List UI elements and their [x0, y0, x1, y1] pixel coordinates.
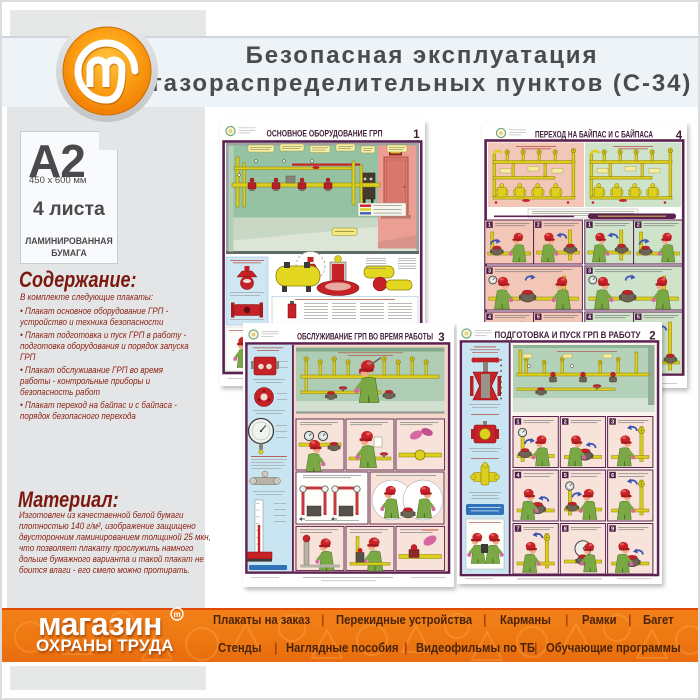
- svg-text:5: 5: [537, 315, 540, 321]
- svg-text:5: 5: [564, 473, 567, 479]
- svg-text:1: 1: [588, 223, 591, 229]
- svg-text:ОБСЛУЖИВАНИЕ ГРП ВО ВРЕМЯ РАБО: ОБСЛУЖИВАНИЕ ГРП ВО ВРЕМЯ РАБОТЫ: [297, 332, 433, 343]
- svg-text:9: 9: [611, 527, 614, 533]
- svg-text:ПЕРЕХОД НА БАЙПАС И С БАЙПАСА: ПЕРЕХОД НА БАЙПАС И С БАЙПАСА: [535, 129, 653, 141]
- svg-text:3: 3: [611, 420, 614, 426]
- svg-text:1: 1: [516, 420, 519, 426]
- svg-text:ПОДГОТОВКА И ПУСК ГРП В РАБОТУ: ПОДГОТОВКА И ПУСК ГРП В РАБОТУ: [495, 330, 641, 341]
- svg-text:2: 2: [637, 223, 640, 229]
- svg-text:8: 8: [564, 527, 567, 533]
- svg-text:2: 2: [564, 420, 567, 426]
- svg-text:6: 6: [611, 473, 614, 479]
- svg-text:5: 5: [637, 315, 640, 321]
- svg-text:7: 7: [516, 527, 519, 533]
- svg-text:1: 1: [413, 129, 420, 141]
- svg-text:1: 1: [488, 223, 491, 229]
- svg-text:3: 3: [588, 269, 591, 275]
- svg-text:ОСНОВНОЕ ОБОРУДОВАНИЕ ГРП: ОСНОВНОЕ ОБОРУДОВАНИЕ ГРП: [267, 129, 383, 140]
- svg-text:3: 3: [488, 269, 491, 275]
- svg-text:2: 2: [537, 223, 540, 229]
